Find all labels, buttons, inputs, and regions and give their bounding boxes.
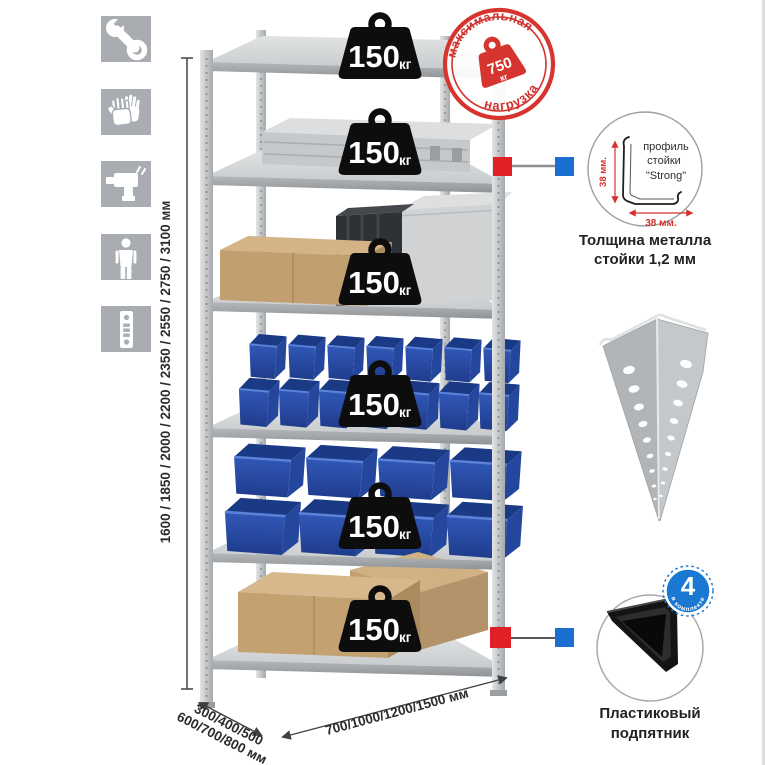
rack-foot	[490, 690, 507, 696]
badge-load-value: 150	[348, 265, 400, 300]
badge-load-unit: кг	[399, 283, 412, 298]
storage-bin	[405, 337, 443, 382]
storage-bin	[444, 337, 482, 382]
profile-dim-horizontal: 38 мм.	[645, 218, 677, 229]
storage-bin	[249, 334, 287, 379]
height-dimension: 1600 / 1850 / 2000 / 2200 / 2350 / 2550 …	[158, 58, 193, 689]
thickness-caption-1: Толщина металла	[579, 232, 712, 249]
profile-detail: 38 мм. 38 мм. профиль стойки "Strong" То…	[579, 112, 712, 268]
plastic-foot-detail: 4 в комплекте Пластиковый подпятник	[597, 566, 713, 742]
quantity-badge-value: 4	[681, 571, 696, 601]
storage-bin	[446, 501, 523, 559]
storage-bin	[233, 443, 305, 497]
load-badge: 150 кг	[339, 16, 422, 80]
scene: 1600 / 1850 / 2000 / 2200 / 2350 / 2550 …	[0, 0, 765, 765]
storage-bin	[438, 381, 479, 431]
callout-red-square	[490, 627, 511, 648]
badge-load-value: 150	[348, 39, 400, 74]
badge-load-unit: кг	[399, 405, 412, 420]
storage-bin	[288, 334, 326, 379]
callout-red-square	[493, 157, 512, 176]
width-dimension: 700/1000/1200/1500 мм	[283, 678, 506, 738]
badge-load-value: 150	[348, 612, 400, 647]
angle-post-image	[600, 315, 708, 521]
profile-label-1: профиль	[643, 141, 689, 153]
badge-load-value: 150	[348, 135, 400, 170]
product-infographic: 1600 / 1850 / 2000 / 2200 / 2350 / 2550 …	[0, 0, 765, 765]
storage-bin	[305, 445, 377, 499]
storage-bin	[327, 335, 365, 380]
foot-caption-2: подпятник	[611, 725, 690, 742]
profile-label-2: стойки	[647, 155, 681, 167]
profile-label-3: "Strong"	[646, 170, 686, 182]
thickness-caption-2: стойки 1,2 мм	[594, 251, 696, 268]
width-dimension-label: 700/1000/1200/1500 мм	[324, 685, 470, 738]
badge-load-unit: кг	[399, 57, 412, 72]
height-dimension-label: 1600 / 1850 / 2000 / 2200 / 2350 / 2550 …	[158, 201, 173, 544]
badge-load-unit: кг	[399, 630, 412, 645]
badge-load-value: 150	[348, 387, 400, 422]
storage-bin	[278, 378, 319, 428]
badge-load-unit: кг	[399, 153, 412, 168]
foot-caption-1: Пластиковый	[599, 705, 700, 722]
badge-load-value: 150	[348, 509, 400, 544]
callout-blue-square	[555, 157, 574, 176]
profile-dim-vertical: 38 мм.	[598, 157, 609, 187]
depth-dimension: 300/400/500 600/700/800 мм	[175, 696, 277, 765]
storage-bin	[238, 378, 279, 428]
badge-load-unit: кг	[399, 527, 412, 542]
callout-blue-square	[555, 628, 574, 647]
max-load-stamp: максимальная нагрузка 750 кг	[429, 0, 568, 133]
storage-bin	[449, 447, 521, 501]
storage-bin	[224, 498, 301, 556]
